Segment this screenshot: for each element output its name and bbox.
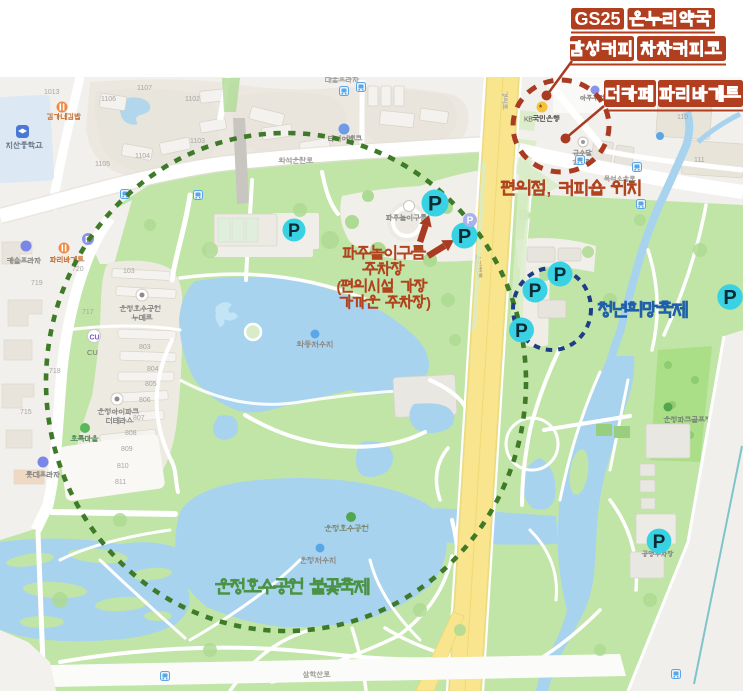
svg-text:P: P <box>467 216 474 227</box>
svg-text:805: 805 <box>145 381 157 388</box>
svg-text:P: P <box>458 226 471 248</box>
svg-text:810: 810 <box>117 463 129 470</box>
svg-text:806: 806 <box>139 397 151 404</box>
svg-text:809: 809 <box>121 446 133 453</box>
svg-text:P: P <box>554 265 567 286</box>
svg-text:P: P <box>515 321 528 342</box>
svg-text:103: 103 <box>123 268 135 275</box>
svg-text:): ) <box>426 296 431 312</box>
svg-text:(: ( <box>337 280 342 296</box>
svg-text:1106: 1106 <box>101 96 116 103</box>
svg-text:718: 718 <box>49 368 61 375</box>
svg-text:1103: 1103 <box>190 138 205 145</box>
svg-text:717: 717 <box>82 309 94 316</box>
svg-text:1105: 1105 <box>95 161 110 168</box>
svg-text:808: 808 <box>125 430 137 437</box>
svg-text:CU: CU <box>90 335 100 342</box>
svg-text:720: 720 <box>72 266 84 273</box>
svg-text:P: P <box>723 287 736 309</box>
svg-text:P: P <box>529 281 542 302</box>
svg-text:719: 719 <box>31 280 43 287</box>
svg-text:P: P <box>653 532 666 553</box>
svg-text:110: 110 <box>677 114 688 121</box>
svg-text:1104: 1104 <box>135 153 150 160</box>
svg-text:804: 804 <box>147 366 159 373</box>
svg-text:P: P <box>288 220 300 240</box>
svg-text:715: 715 <box>20 409 32 416</box>
svg-text:GS25: GS25 <box>574 9 620 29</box>
svg-text:811: 811 <box>115 479 126 486</box>
svg-text:1013: 1013 <box>44 89 60 96</box>
svg-text:,: , <box>547 181 552 199</box>
svg-text:803: 803 <box>139 344 151 351</box>
svg-text:1102: 1102 <box>185 96 200 103</box>
svg-text:807: 807 <box>133 415 145 422</box>
svg-text:CU: CU <box>87 348 98 357</box>
svg-text:P: P <box>428 193 442 216</box>
svg-text:111: 111 <box>694 157 705 164</box>
svg-text:1107: 1107 <box>137 85 152 92</box>
